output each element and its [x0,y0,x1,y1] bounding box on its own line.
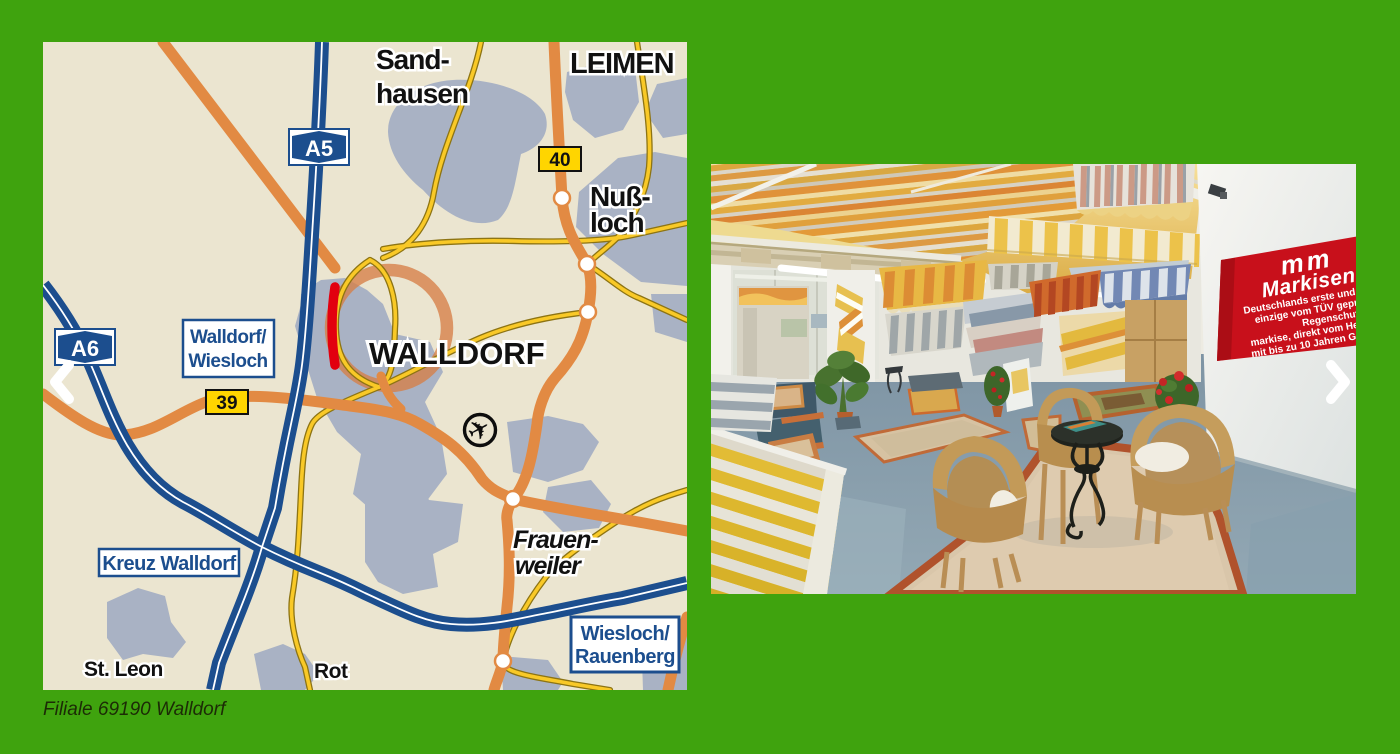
svg-text:40: 40 [549,150,570,171]
svg-text:St. Leon: St. Leon [84,658,163,681]
svg-text:39: 39 [216,393,237,414]
svg-text:WALLDORF: WALLDORF [369,336,545,371]
svg-text:Kreuz Walldorf: Kreuz Walldorf [102,553,236,575]
svg-text:A5: A5 [305,136,333,161]
svg-text:Frauen-: Frauen- [513,526,598,554]
svg-text:Walldorf/: Walldorf/ [190,327,267,348]
svg-text:Wiesloch: Wiesloch [188,351,267,372]
svg-text:Wiesloch/: Wiesloch/ [581,623,671,645]
svg-text:LEIMEN: LEIMEN [570,48,674,80]
svg-text:hausen: hausen [376,78,468,109]
svg-text:Rot: Rot [314,660,348,683]
svg-text:weiler: weiler [515,552,582,580]
svg-text:loch: loch [590,207,644,238]
svg-text:Sand-: Sand- [376,44,449,75]
svg-text:Rauenberg: Rauenberg [575,646,675,668]
